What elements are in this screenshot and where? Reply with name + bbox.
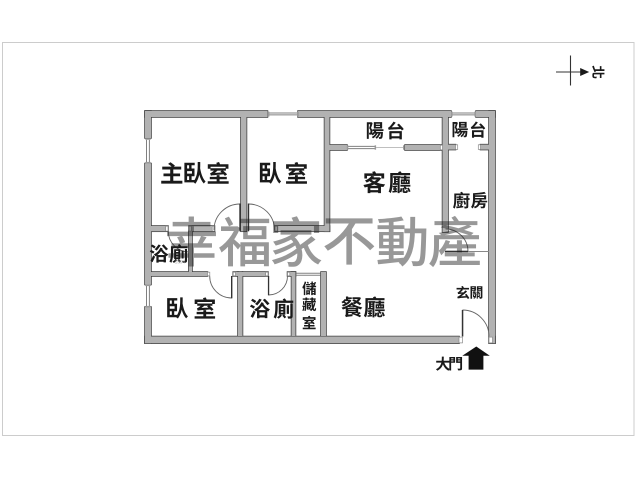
svg-text:2894: 2894 <box>175 260 186 265</box>
